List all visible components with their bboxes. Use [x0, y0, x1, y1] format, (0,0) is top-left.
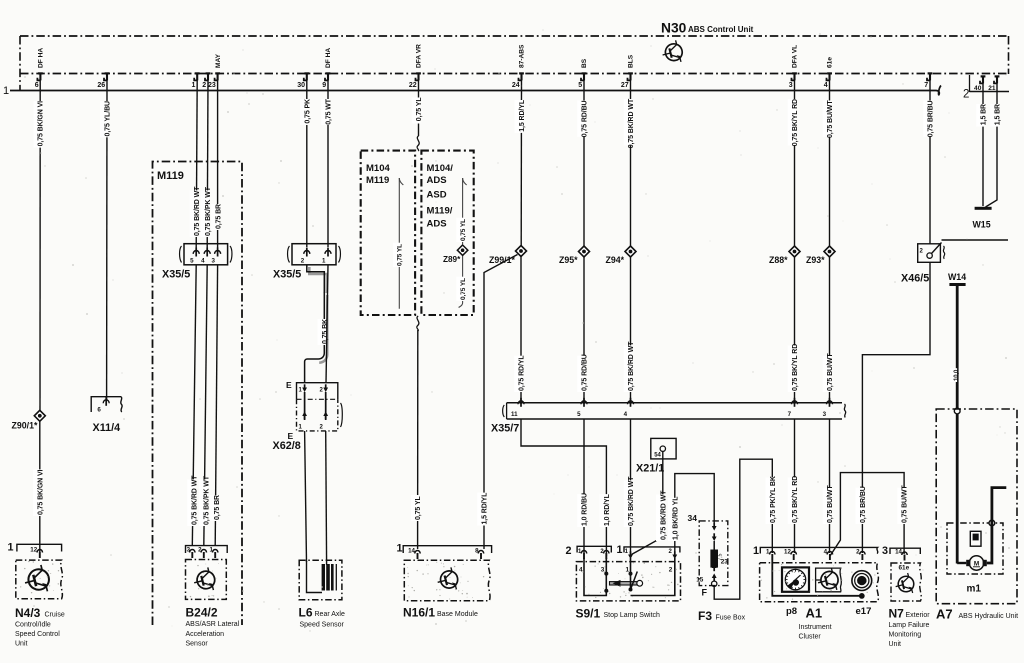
- svg-text:Z99/1*: Z99/1*: [489, 255, 515, 265]
- svg-text:N7: N7: [889, 607, 905, 621]
- svg-text:21: 21: [988, 85, 996, 92]
- svg-text:1: 1: [322, 257, 326, 264]
- svg-text:M119: M119: [366, 175, 389, 186]
- svg-text:0,75 BU/WT: 0,75 BU/WT: [827, 353, 834, 391]
- svg-text:22: 22: [409, 82, 417, 89]
- svg-text:6: 6: [35, 82, 39, 89]
- svg-text:10,0: 10,0: [954, 369, 960, 381]
- svg-text:5: 5: [190, 257, 194, 264]
- svg-text:40: 40: [974, 85, 982, 92]
- svg-text:11: 11: [511, 411, 518, 418]
- svg-text:3: 3: [882, 545, 888, 557]
- svg-text:DFA VL: DFA VL: [792, 45, 799, 68]
- svg-text:0,75 WT: 0,75 WT: [326, 98, 333, 125]
- svg-text:DF HA: DF HA: [325, 48, 332, 68]
- svg-text:0,75 YL: 0,75 YL: [460, 219, 467, 241]
- svg-text:0,75 BK/GN VI: 0,75 BK/GN VI: [37, 469, 44, 515]
- svg-text:26: 26: [97, 82, 105, 89]
- svg-text:54: 54: [654, 453, 661, 459]
- svg-text:1: 1: [753, 545, 759, 557]
- svg-text:Stop Lamp Switch: Stop Lamp Switch: [604, 612, 661, 619]
- svg-text:2: 2: [856, 548, 860, 555]
- svg-text:0,75 BR/BU: 0,75 BR/BU: [928, 100, 935, 137]
- svg-text:4: 4: [579, 567, 583, 574]
- svg-text:W15: W15: [973, 220, 991, 230]
- svg-text:X21/1: X21/1: [636, 463, 664, 475]
- svg-text:3: 3: [187, 547, 191, 554]
- svg-text:0,75 BK/PK WT: 0,75 BK/PK WT: [205, 186, 212, 236]
- svg-text:4: 4: [824, 548, 828, 555]
- svg-text:DF HA: DF HA: [38, 48, 45, 68]
- svg-text:Rear Axle: Rear Axle: [315, 611, 345, 618]
- svg-text:0,75 PK: 0,75 PK: [304, 99, 311, 124]
- svg-text:2: 2: [202, 82, 206, 89]
- svg-text:M119: M119: [157, 170, 184, 182]
- svg-text:W14: W14: [948, 272, 966, 282]
- svg-text:5: 5: [578, 82, 582, 89]
- svg-text:0,75 YL: 0,75 YL: [397, 244, 404, 266]
- svg-text:1: 1: [210, 547, 214, 554]
- svg-text:Instrument: Instrument: [799, 624, 832, 631]
- svg-text:Z90/1*: Z90/1*: [12, 421, 38, 431]
- svg-text:ADS: ADS: [427, 219, 447, 230]
- svg-text:4: 4: [624, 411, 628, 418]
- svg-text:3: 3: [823, 411, 827, 418]
- svg-text:X46/5: X46/5: [901, 273, 929, 285]
- svg-text:L6: L6: [299, 606, 313, 620]
- svg-text:14: 14: [408, 547, 415, 554]
- svg-text:1: 1: [766, 548, 770, 555]
- svg-text:B24/2: B24/2: [186, 606, 218, 620]
- svg-text:0,75 BK/GN VI: 0,75 BK/GN VI: [38, 101, 45, 147]
- svg-text:Z94*: Z94*: [606, 255, 625, 265]
- svg-text:ABS Hydraulic Unit: ABS Hydraulic Unit: [959, 613, 1019, 620]
- svg-text:DFA VR: DFA VR: [416, 44, 423, 68]
- svg-text:Acceleration: Acceleration: [186, 631, 225, 638]
- svg-text:A7: A7: [936, 607, 953, 622]
- svg-text:Z93*: Z93*: [806, 255, 825, 265]
- svg-text:0,75 BK/YL RD: 0,75 BK/YL RD: [792, 476, 799, 523]
- svg-text:8: 8: [475, 547, 479, 554]
- svg-text:3: 3: [789, 82, 793, 89]
- svg-text:M: M: [974, 560, 979, 567]
- svg-text:N4/3: N4/3: [15, 606, 41, 620]
- svg-text:6: 6: [97, 407, 101, 414]
- svg-text:0,75 BR: 0,75 BR: [214, 495, 221, 520]
- svg-text:2: 2: [301, 257, 305, 264]
- svg-text:0,75 BK/RD WT: 0,75 BK/RD WT: [628, 476, 635, 526]
- svg-text:14: 14: [895, 549, 902, 556]
- svg-text:61e: 61e: [827, 57, 834, 68]
- svg-text:0,75 YL: 0,75 YL: [460, 278, 467, 300]
- svg-text:0,75 BK/RD WT: 0,75 BK/RD WT: [192, 475, 199, 525]
- svg-text:0,75 BR/BU: 0,75 BR/BU: [860, 486, 867, 523]
- svg-text:0,75 RD/YL: 0,75 RD/YL: [519, 355, 526, 391]
- svg-text:1,0 RD/BU: 1,0 RD/BU: [582, 493, 589, 526]
- svg-text:ABS Control Unit: ABS Control Unit: [688, 25, 754, 34]
- svg-text:1,5 RD/YL: 1,5 RD/YL: [519, 99, 526, 132]
- svg-text:1,5 BR: 1,5 BR: [981, 104, 988, 125]
- svg-text:ASD: ASD: [427, 190, 447, 201]
- svg-text:e17: e17: [856, 606, 872, 617]
- svg-text:Speed Sensor: Speed Sensor: [300, 622, 345, 629]
- svg-text:N16/1: N16/1: [403, 606, 435, 620]
- svg-text:23: 23: [721, 559, 729, 566]
- svg-text:BLS: BLS: [628, 54, 635, 68]
- svg-text:X11/4: X11/4: [93, 422, 121, 434]
- svg-text:ABS/ASR Lateral: ABS/ASR Lateral: [186, 621, 240, 628]
- svg-text:1: 1: [625, 567, 629, 574]
- svg-text:0,75 YL: 0,75 YL: [416, 97, 423, 122]
- svg-text:Control/Idle: Control/Idle: [15, 622, 51, 629]
- svg-text:Exterior: Exterior: [906, 612, 931, 619]
- svg-text:34: 34: [688, 513, 698, 523]
- svg-text:0,75 BK/YL RD: 0,75 BK/YL RD: [792, 99, 799, 146]
- svg-text:Unit: Unit: [15, 641, 28, 648]
- svg-text:M104/: M104/: [427, 163, 454, 174]
- svg-text:1,0 BK/RD YL: 1,0 BK/RD YL: [672, 496, 679, 540]
- svg-text:2: 2: [669, 567, 673, 574]
- svg-text:0,75 BK/RD WT: 0,75 BK/RD WT: [628, 98, 635, 148]
- svg-text:1,0 RD/YL: 1,0 RD/YL: [604, 493, 611, 526]
- svg-text:4: 4: [201, 257, 205, 264]
- svg-text:A1: A1: [806, 606, 823, 621]
- svg-text:0,75 BU/WT: 0,75 BU/WT: [827, 485, 834, 523]
- svg-text:Monitoring: Monitoring: [889, 632, 922, 639]
- svg-text:Unit: Unit: [889, 641, 902, 648]
- svg-text:X62/8: X62/8: [273, 440, 301, 452]
- svg-text:0,75 BK/PK WT: 0,75 BK/PK WT: [203, 475, 210, 525]
- svg-text:1: 1: [3, 85, 9, 97]
- svg-text:M119/: M119/: [427, 206, 453, 217]
- svg-text:1,5 RD/YL: 1,5 RD/YL: [482, 492, 489, 525]
- svg-text:0,75 YL: 0,75 YL: [415, 495, 422, 520]
- svg-text:Cluster: Cluster: [799, 634, 822, 641]
- svg-text:27: 27: [621, 82, 629, 89]
- svg-text:X35/7: X35/7: [491, 423, 519, 435]
- svg-text:0,75 BK/YL RD: 0,75 BK/YL RD: [792, 344, 799, 391]
- svg-text:0,75 BU/WT: 0,75 BU/WT: [827, 100, 834, 138]
- svg-text:1: 1: [8, 542, 14, 554]
- svg-text:p8: p8: [786, 606, 797, 617]
- svg-text:12: 12: [784, 548, 791, 555]
- svg-text:0,75 BK/RD WT: 0,75 BK/RD WT: [194, 186, 201, 236]
- svg-text:0,75 BR: 0,75 BR: [216, 204, 223, 229]
- svg-text:1,5 BR: 1,5 BR: [995, 104, 1002, 125]
- svg-text:0,75 RD/BU: 0,75 RD/BU: [582, 354, 589, 391]
- svg-text:0,75 RD/BU: 0,75 RD/BU: [582, 100, 589, 137]
- svg-text:F3: F3: [698, 609, 712, 623]
- svg-text:7: 7: [924, 82, 928, 89]
- svg-text:Z88*: Z88*: [769, 255, 788, 265]
- svg-text:MAY: MAY: [215, 53, 222, 68]
- svg-text:7: 7: [788, 411, 792, 418]
- svg-text:4: 4: [824, 82, 828, 89]
- svg-text:Z89*: Z89*: [443, 255, 461, 264]
- svg-text:0,75 BK: 0,75 BK: [322, 319, 329, 344]
- svg-text:ABS: ABS: [857, 579, 867, 584]
- svg-text:61e: 61e: [899, 565, 910, 572]
- svg-text:9: 9: [322, 82, 326, 89]
- svg-text:ADS: ADS: [427, 175, 447, 186]
- svg-text:12: 12: [30, 546, 37, 553]
- svg-text:87-ABS: 87-ABS: [519, 44, 526, 68]
- svg-text:N30: N30: [661, 21, 687, 36]
- svg-text:0,75 PK/YL BK: 0,75 PK/YL BK: [770, 476, 777, 523]
- svg-text:5: 5: [577, 411, 581, 418]
- svg-text:S9/1: S9/1: [576, 607, 601, 621]
- svg-text:BS: BS: [581, 58, 588, 68]
- svg-text:2: 2: [963, 89, 969, 101]
- svg-text:30: 30: [297, 82, 305, 89]
- svg-text:23: 23: [208, 82, 216, 89]
- svg-text:0,75 BU/WT: 0,75 BU/WT: [902, 485, 909, 523]
- svg-text:E: E: [286, 380, 292, 390]
- svg-text:0,75 BK/RD WT: 0,75 BK/RD WT: [628, 341, 635, 391]
- svg-text:2: 2: [566, 545, 572, 557]
- svg-text:Fuse Box: Fuse Box: [716, 615, 746, 622]
- svg-text:X35/5: X35/5: [273, 269, 301, 281]
- svg-text:M104: M104: [366, 163, 390, 174]
- svg-text:Base Module: Base Module: [437, 611, 478, 618]
- svg-text:15: 15: [696, 577, 704, 584]
- svg-text:Z95*: Z95*: [559, 255, 578, 265]
- svg-text:1: 1: [397, 543, 403, 555]
- svg-text:1: 1: [617, 544, 623, 556]
- svg-text:F: F: [702, 588, 708, 598]
- svg-text:Sensor: Sensor: [186, 641, 209, 648]
- svg-text:0,75 BK/RD WT: 0,75 BK/RD WT: [660, 490, 667, 540]
- svg-text:Speed Control: Speed Control: [15, 631, 60, 638]
- svg-text:Cruise: Cruise: [45, 612, 65, 619]
- svg-text:m1: m1: [967, 584, 982, 595]
- svg-text:2: 2: [198, 547, 202, 554]
- svg-text:0,75 YL/BU: 0,75 YL/BU: [104, 101, 111, 136]
- svg-text:1: 1: [191, 82, 195, 89]
- svg-text:3: 3: [212, 257, 216, 264]
- svg-text:24: 24: [512, 82, 520, 89]
- svg-text:Lamp Failure: Lamp Failure: [889, 622, 930, 629]
- svg-text:X35/5: X35/5: [162, 269, 190, 281]
